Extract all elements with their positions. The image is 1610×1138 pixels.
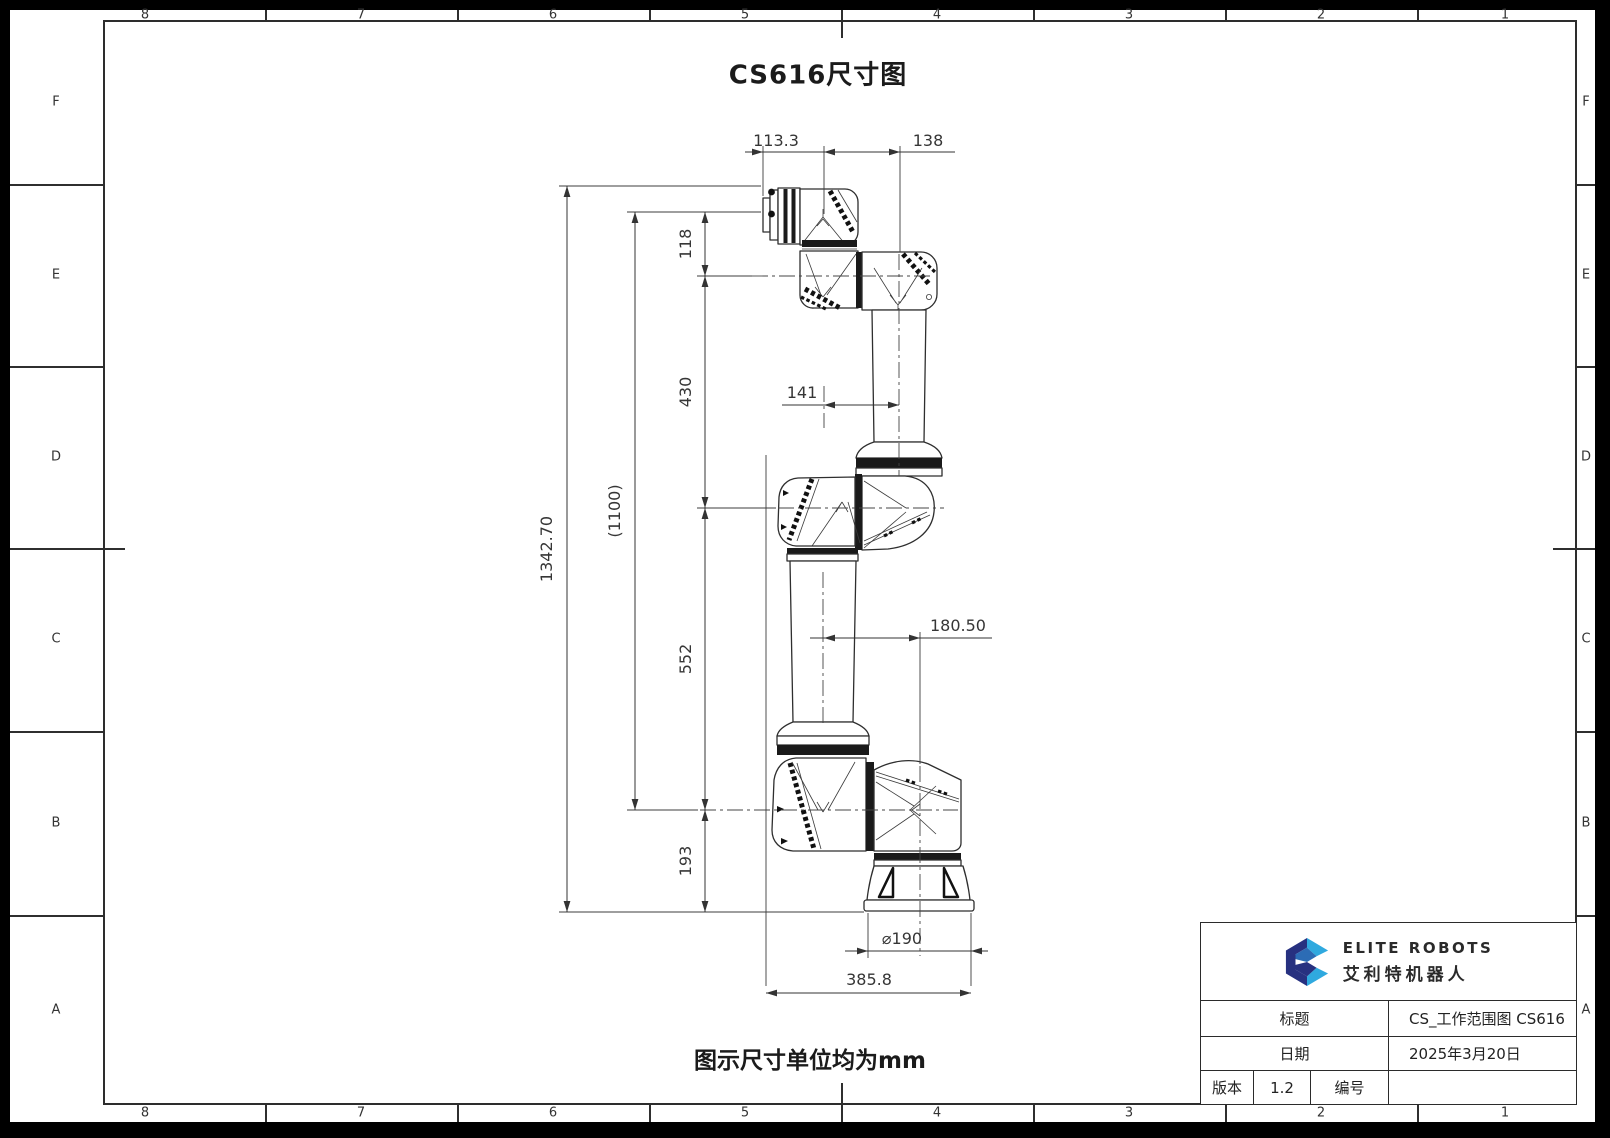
- zone-divider: [1577, 731, 1595, 733]
- robot-wrist3-flange: [763, 188, 858, 249]
- zone-col-label: 1: [1501, 8, 1509, 23]
- date-value: 2025年3月20日: [1389, 1037, 1576, 1070]
- robot-base-column: [874, 761, 961, 851]
- brand-text: ELITE ROBOTS 艾利特机器人: [1343, 939, 1494, 985]
- zone-row-label: D: [51, 450, 61, 465]
- zone-divider: [649, 1105, 651, 1122]
- zone-divider: [265, 1105, 267, 1122]
- dim-forearm: 552: [676, 644, 695, 675]
- drawing-page: 8 7 6 5 4 3 2 1 8 7 6 5 4 3 2 1 F E D C …: [0, 0, 1610, 1138]
- zone-col-label: 4: [933, 1106, 941, 1121]
- elite-robots-logo-icon: [1284, 935, 1330, 989]
- dim-total-height: 1342.70: [537, 516, 556, 582]
- drawing-title: CS616尺寸图: [729, 55, 908, 92]
- zone-divider: [1033, 1105, 1035, 1122]
- robot-dimension-drawing: 113.3 138 141 180.50 ⌀190 385.8: [530, 128, 1010, 1010]
- zone-col-label: 6: [549, 1106, 557, 1121]
- zone-divider: [1577, 184, 1595, 186]
- dim-base-diameter: ⌀190: [882, 929, 922, 948]
- zone-divider: [1033, 10, 1035, 20]
- number-value: [1389, 1071, 1576, 1104]
- robot-shoulder: [772, 758, 874, 851]
- robot-body: [763, 188, 974, 911]
- zone-col-label: 8: [141, 1106, 149, 1121]
- dim-wrist-height: 118: [676, 229, 695, 260]
- zone-row-label: A: [1582, 1003, 1591, 1018]
- zone-col-label: 3: [1125, 8, 1133, 23]
- dim-wrist-offset: 138: [913, 131, 944, 150]
- zone-center-mark: [1553, 548, 1595, 550]
- zone-center-mark: [10, 548, 125, 550]
- dim-base-offset: 180.50: [930, 616, 986, 635]
- version-value: 1.2: [1254, 1071, 1311, 1104]
- zone-divider: [1417, 1105, 1419, 1122]
- zone-divider: [10, 915, 103, 917]
- robot-base: [864, 853, 974, 911]
- zone-divider: [1225, 1105, 1227, 1122]
- zone-col-label: 6: [549, 8, 557, 23]
- robot-elbow: [778, 474, 934, 550]
- zone-center-mark: [841, 10, 843, 38]
- dim-upper-arm: 430: [676, 377, 695, 408]
- brand-name-cn: 艾利特机器人: [1343, 960, 1494, 985]
- title-value: CS_工作范围图 CS616: [1389, 1001, 1576, 1036]
- unit-note: 图示尺寸单位均为mm: [694, 1041, 926, 1075]
- zone-row-label: B: [1582, 816, 1591, 831]
- zone-divider: [1577, 915, 1595, 917]
- zone-divider: [457, 10, 459, 20]
- zone-row-label: F: [52, 95, 59, 110]
- zone-center-mark: [841, 1083, 843, 1122]
- zone-row-label: E: [1582, 268, 1590, 283]
- zone-row-label: C: [51, 632, 60, 647]
- robot-wrist2: [800, 251, 858, 309]
- zone-col-label: 8: [141, 8, 149, 23]
- zone-col-label: 5: [741, 8, 749, 23]
- zone-col-label: 7: [357, 8, 365, 23]
- zone-row-label: E: [52, 268, 60, 283]
- date-label: 日期: [1201, 1037, 1389, 1070]
- dim-base-width: 385.8: [846, 970, 892, 989]
- zone-divider: [1225, 10, 1227, 20]
- zone-row-label: A: [52, 1003, 61, 1018]
- dim-reference-height: (1100): [605, 484, 624, 537]
- zone-col-label: 3: [1125, 1106, 1133, 1121]
- zone-row-label: B: [52, 816, 61, 831]
- zone-divider: [10, 731, 103, 733]
- zone-col-label: 2: [1317, 8, 1325, 23]
- dim-flange-to-wrist: 113.3: [753, 131, 799, 150]
- zone-col-label: 4: [933, 8, 941, 23]
- title-block-logo-row: ELITE ROBOTS 艾利特机器人: [1201, 923, 1576, 1001]
- zone-col-label: 1: [1501, 1106, 1509, 1121]
- zone-divider: [457, 1105, 459, 1122]
- number-label: 编号: [1311, 1071, 1389, 1104]
- zone-col-label: 7: [357, 1106, 365, 1121]
- title-block: ELITE ROBOTS 艾利特机器人 标题 CS_工作范围图 CS616 日期…: [1200, 922, 1577, 1105]
- zone-col-label: 2: [1317, 1106, 1325, 1121]
- version-label: 版本: [1201, 1071, 1254, 1104]
- zone-divider: [1577, 366, 1595, 368]
- dim-base-height: 193: [676, 846, 695, 877]
- zone-col-label: 5: [741, 1106, 749, 1121]
- zone-row-label: D: [1581, 450, 1591, 465]
- robot-wrist1: [862, 252, 937, 310]
- title-label: 标题: [1201, 1001, 1389, 1036]
- dim-elbow-offset: 141: [787, 383, 818, 402]
- zone-divider: [265, 10, 267, 20]
- zone-divider: [1417, 10, 1419, 20]
- zone-divider: [10, 184, 103, 186]
- robot-joint-ring: [856, 252, 862, 308]
- zone-row-label: F: [1582, 95, 1589, 110]
- zone-divider: [649, 10, 651, 20]
- zone-divider: [10, 366, 103, 368]
- zone-row-label: C: [1581, 632, 1590, 647]
- brand-name-en: ELITE ROBOTS: [1343, 939, 1494, 957]
